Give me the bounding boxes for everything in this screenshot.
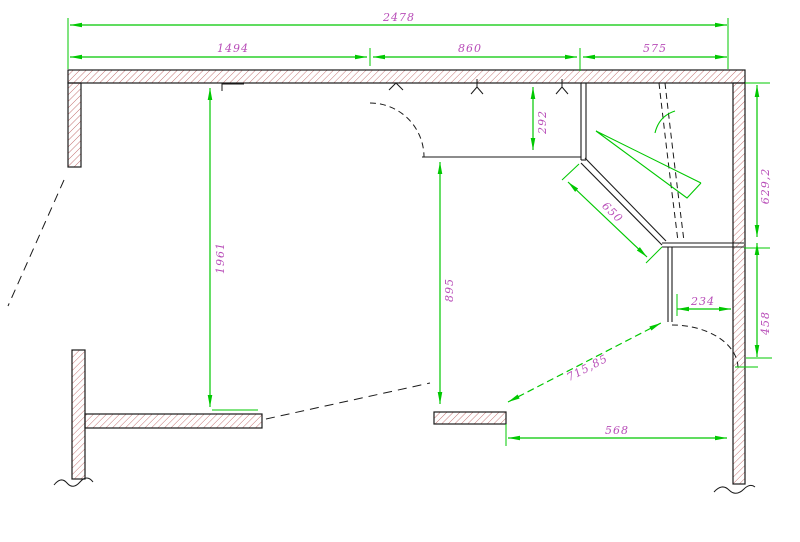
ext-line <box>562 164 579 180</box>
door-leaf-dashed-2 <box>665 83 684 241</box>
annotation-hook-curve <box>655 111 675 133</box>
dim-text-left-height: 1961 <box>214 242 227 274</box>
bottom-middle-wall-block <box>434 412 506 424</box>
tick-symbol-corner <box>222 84 244 91</box>
dim-text-top-left: 1494 <box>217 42 249 55</box>
walls <box>68 70 745 484</box>
dim-text-bottom-width: 568 <box>605 424 629 437</box>
dim-text-niche-width: 234 <box>690 295 715 308</box>
right-wall-break-squiggle <box>714 485 755 493</box>
dashed-line-left <box>8 180 64 306</box>
floor-plan-canvas: 2478 1494 860 575 1961 292 895 629,2 458… <box>0 0 800 542</box>
ext-line <box>646 247 662 263</box>
diagonal-wall-line-2 <box>585 158 666 241</box>
right-wall <box>733 83 745 484</box>
interior-structure <box>422 83 744 322</box>
dim-text-niche-height: 458 <box>759 311 772 336</box>
floor-plan-page: 2478 1494 860 575 1961 292 895 629,2 458… <box>0 0 800 542</box>
dim-text-top-total: 2478 <box>382 11 415 24</box>
dim-line-diagonal-wall <box>568 182 647 257</box>
dim-text-top-middle: 860 <box>458 42 482 55</box>
dim-text-top-right: 575 <box>643 42 667 55</box>
dim-text-opening: 292 <box>536 110 549 135</box>
annotation-arrow-triangle <box>596 131 701 198</box>
left-upper-wall <box>68 83 81 167</box>
dashed-line-bottom <box>266 383 430 419</box>
top-wall <box>68 70 745 83</box>
door-swing-arc-top <box>370 103 424 157</box>
dim-text-counter-run: 895 <box>443 278 456 302</box>
dim-text-right-upper: 629,2 <box>759 168 772 205</box>
door-swing-arc-niche <box>672 325 738 368</box>
left-lower-wall <box>72 350 85 479</box>
bottom-left-counter-wall <box>85 414 262 428</box>
tick-symbol-chevron <box>389 83 403 90</box>
dim-text-diagonal-clearance: 715,85 <box>565 352 610 384</box>
door-leaf-dashed-1 <box>659 83 678 241</box>
